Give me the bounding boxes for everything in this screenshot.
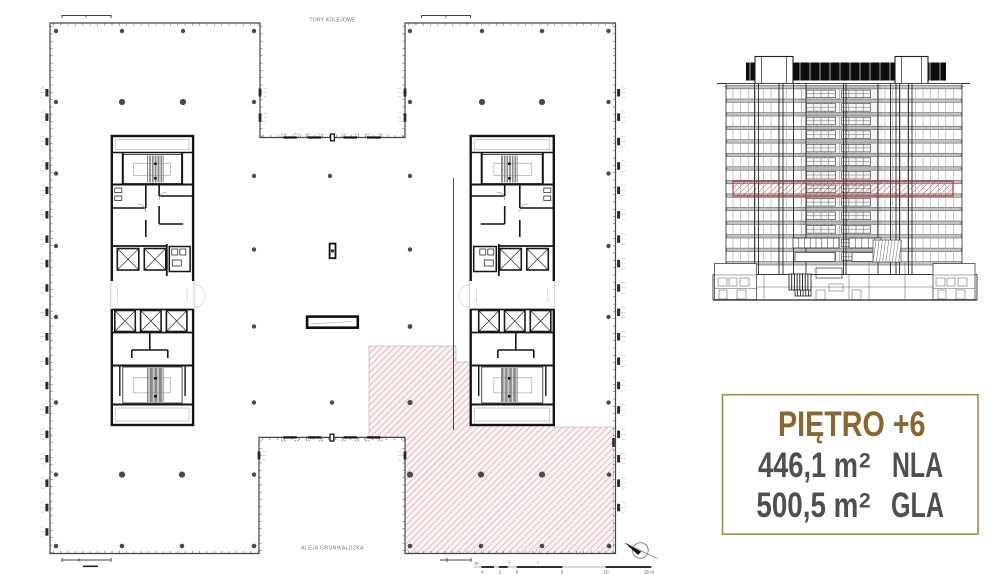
svg-text:GLA: GLA — [891, 486, 944, 525]
svg-text:15 m: 15 m — [644, 570, 654, 575]
svg-text:10: 10 — [603, 570, 609, 575]
svg-text:ALEJA GRUNWALDZKA: ALEJA GRUNWALDZKA — [301, 546, 364, 552]
svg-text:0: 0 — [516, 570, 519, 575]
svg-text:2: 2 — [859, 490, 871, 513]
svg-text:2: 2 — [859, 450, 871, 473]
svg-text:5: 5 — [561, 570, 564, 575]
svg-text:TORY KOLEJOWE: TORY KOLEJOWE — [309, 18, 356, 24]
svg-text:446,1 m: 446,1 m — [758, 446, 858, 485]
svg-text:500,5 m: 500,5 m — [756, 486, 858, 525]
svg-text:3m: 3m — [474, 562, 479, 566]
svg-text:3: 3 — [508, 561, 510, 565]
svg-text:2: 2 — [499, 570, 502, 575]
svg-text:4: 4 — [481, 570, 484, 575]
svg-text:PIĘTRO +6: PIĘTRO +6 — [778, 405, 926, 444]
svg-text:1: 1 — [537, 561, 539, 565]
svg-text:NLA: NLA — [892, 446, 943, 485]
